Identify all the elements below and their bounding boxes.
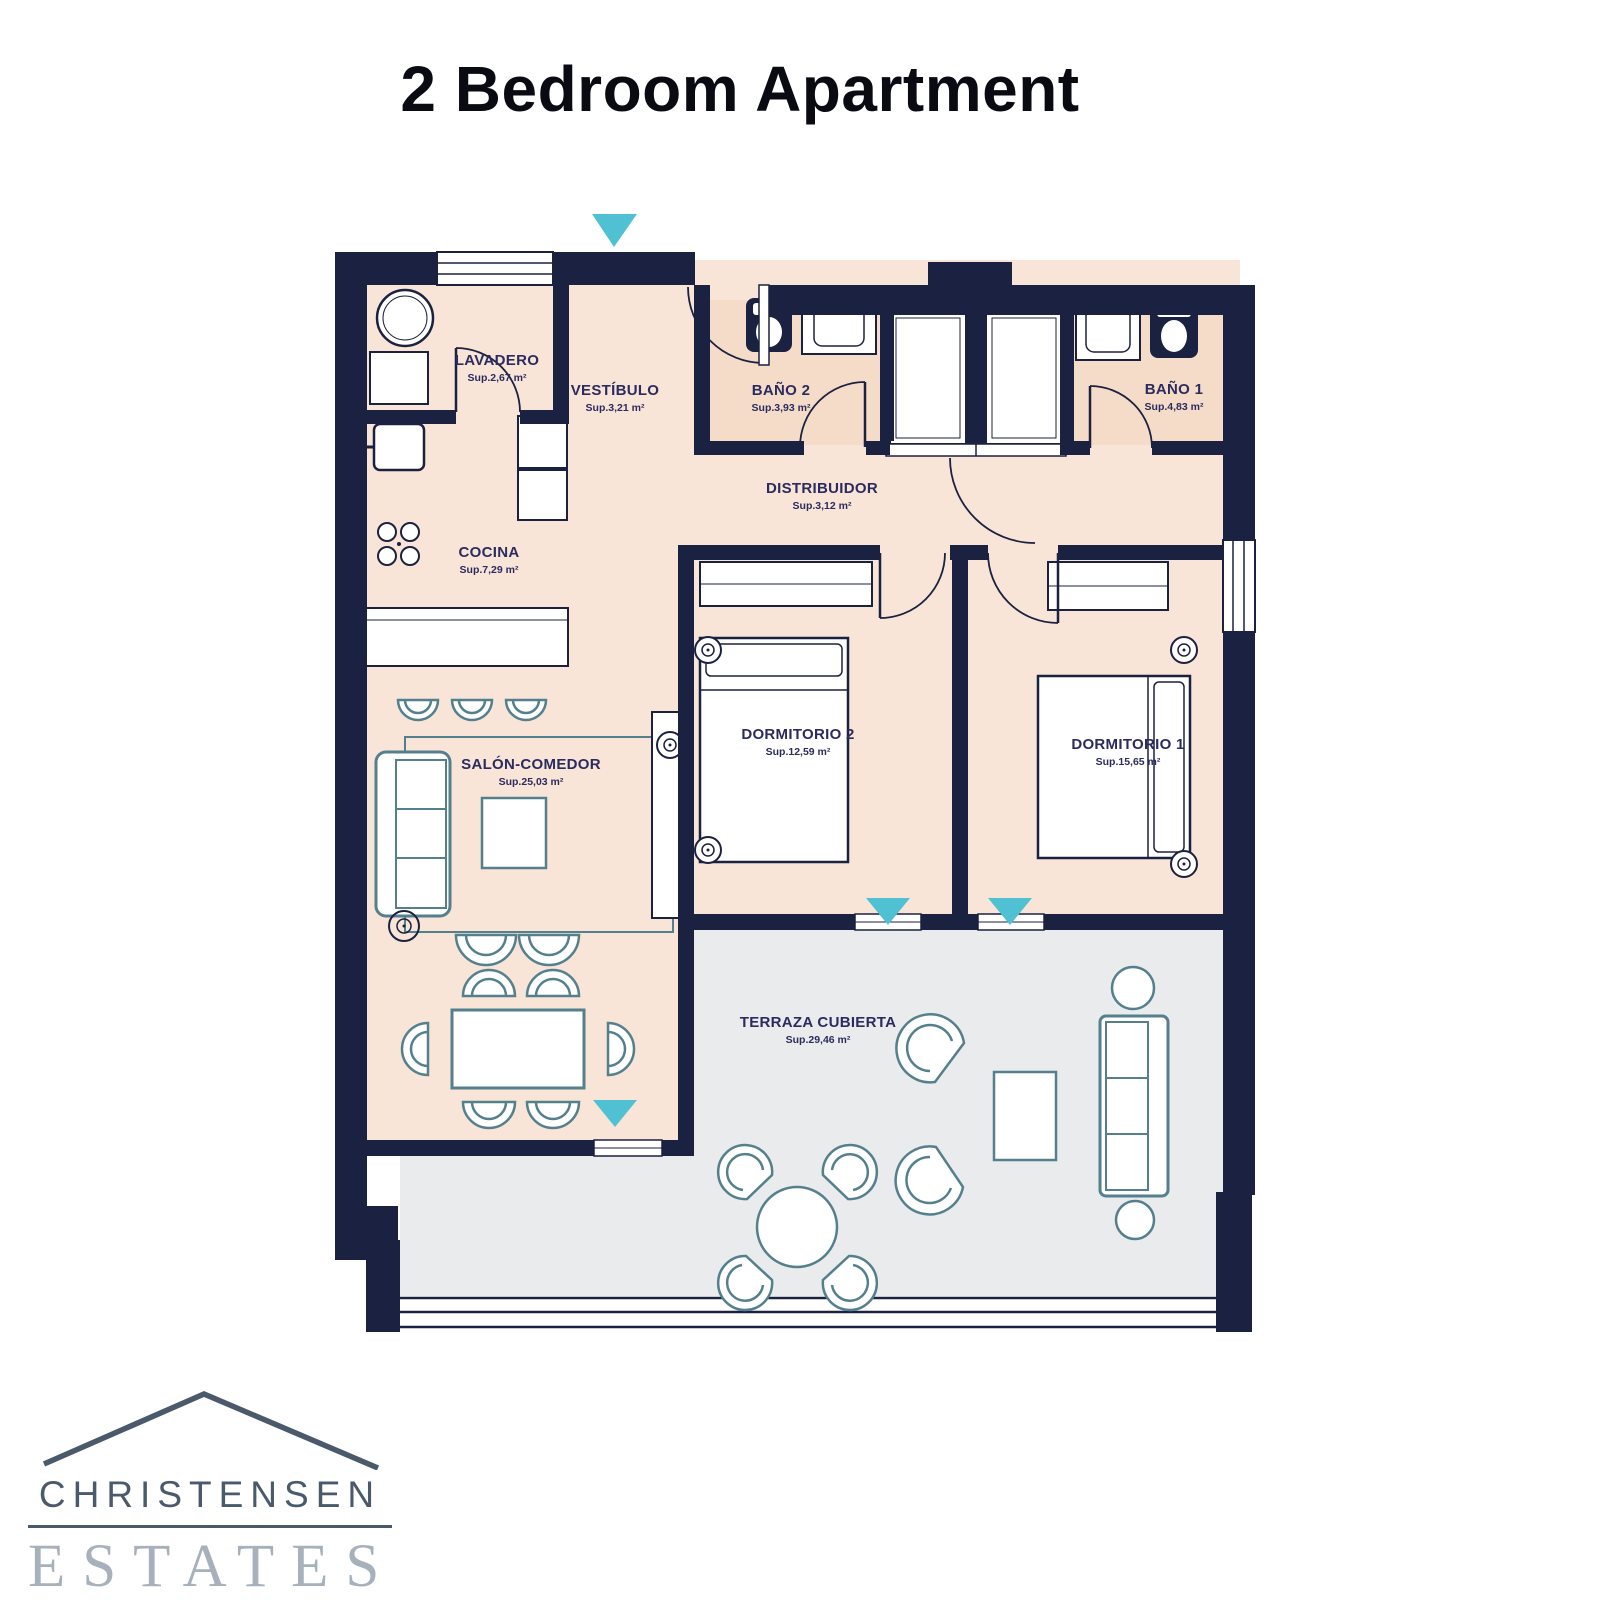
room-label-terraza: TERRAZA CUBIERTA Sup.29,46 m² — [740, 1014, 896, 1046]
bedroom2-furniture — [700, 562, 872, 862]
floor-plan-drawing — [0, 0, 1600, 1600]
page: 2 Bedroom Apartment — [0, 0, 1600, 1600]
room-label-dormitorio1: DORMITORIO 1 Sup.15,65 m² — [1071, 736, 1184, 768]
bar-stools — [398, 700, 546, 720]
floor-plan: LAVADERO Sup.2,67 m² VESTÍBULO Sup.3,21 … — [0, 0, 1600, 1600]
entrance-arrow-icon — [592, 214, 637, 247]
brand-logo: CHRISTENSEN ESTATES — [28, 1386, 392, 1600]
logo-name: CHRISTENSEN — [28, 1474, 392, 1516]
room-label-bano1: BAÑO 1 Sup.4,83 m² — [1145, 381, 1204, 413]
room-label-distribuidor: DISTRIBUIDOR Sup.3,12 m² — [766, 480, 878, 512]
logo-divider — [28, 1525, 392, 1528]
coffee-table — [482, 798, 546, 868]
terrace-table — [994, 1072, 1056, 1160]
room-label-dormitorio2: DORMITORIO 2 Sup.12,59 m² — [741, 726, 854, 758]
room-label-lavadero: LAVADERO Sup.2,67 m² — [455, 352, 539, 384]
logo-roof-icon — [28, 1386, 392, 1470]
sofa — [376, 752, 450, 916]
hall-wardrobes — [886, 312, 1066, 456]
room-label-vestibulo: VESTÍBULO Sup.3,21 m² — [571, 382, 660, 414]
room-label-cocina: COCINA Sup.7,29 m² — [459, 544, 520, 576]
room-label-salon: SALÓN-COMEDOR Sup.25,03 m² — [461, 756, 601, 788]
logo-division: ESTATES — [28, 1532, 392, 1600]
bedroom1-furniture — [1038, 562, 1190, 858]
room-label-bano2: BAÑO 2 Sup.3,93 m² — [752, 382, 811, 414]
